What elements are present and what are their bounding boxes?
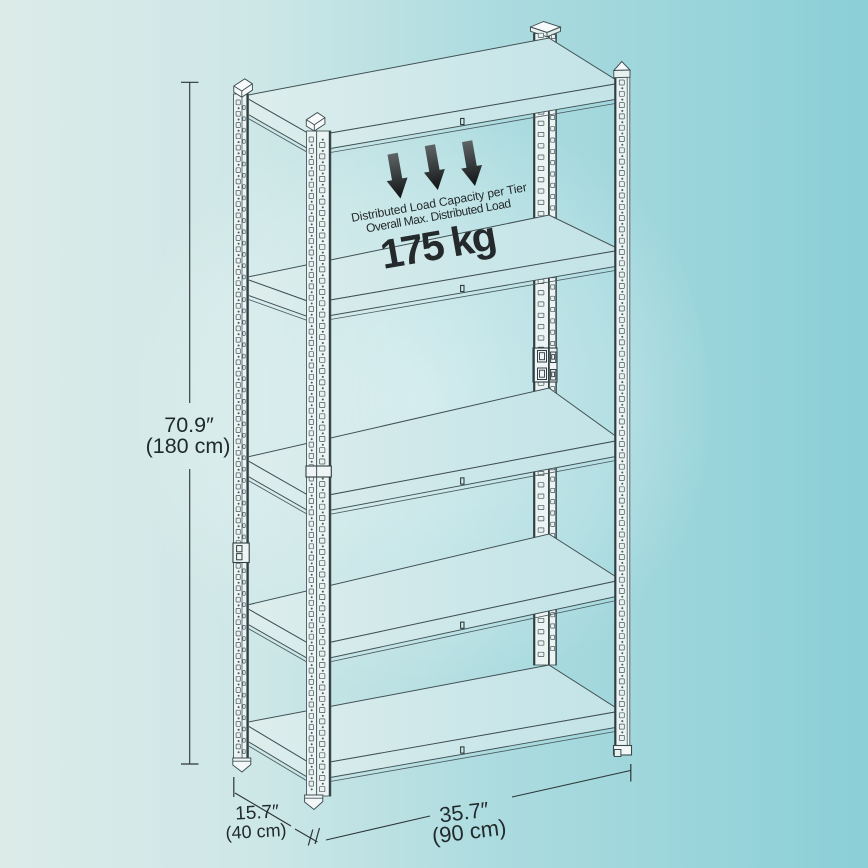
svg-text:(40 cm): (40 cm)	[225, 820, 287, 843]
svg-text:(180 cm): (180 cm)	[146, 434, 231, 458]
